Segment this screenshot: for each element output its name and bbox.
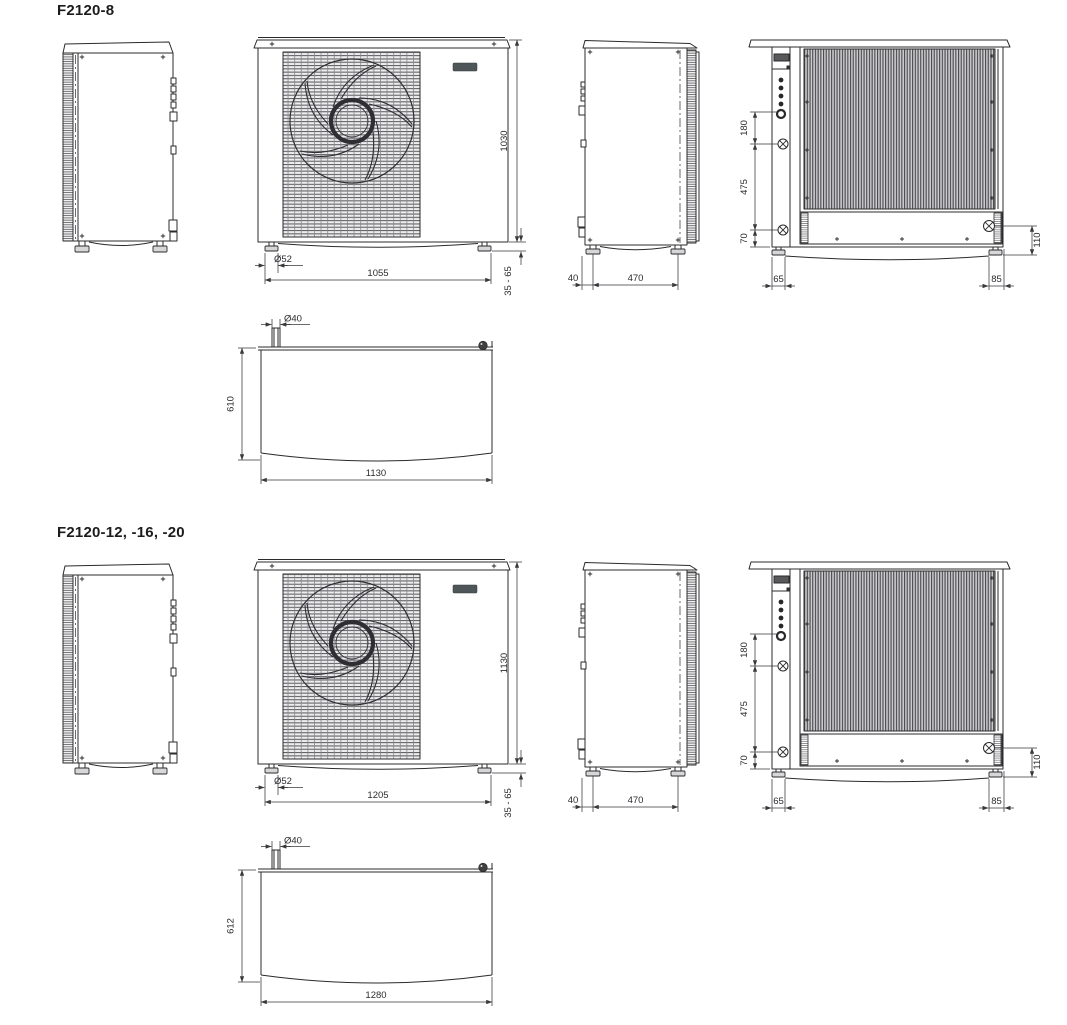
top-cap (63, 564, 173, 575)
top-cap (583, 563, 697, 571)
feet (265, 242, 491, 251)
top-view: Ø40 612 1280 (222, 830, 522, 1025)
top-cap (254, 40, 510, 48)
feet (75, 763, 167, 774)
model-title: F2120-12, -16, -20 (57, 524, 185, 541)
cabinet-body (73, 575, 173, 763)
side-fins (63, 53, 73, 241)
dim-width-label: 1205 (367, 790, 388, 801)
pipe-connection-icon (778, 225, 788, 235)
small-mark (787, 66, 790, 69)
dim-left-offset-label: 65 (773, 796, 784, 807)
cabinet-body (73, 53, 173, 241)
dim-pipe-dia-label: Ø40 (284, 314, 302, 325)
pipe-connection-icon (778, 661, 788, 671)
dim-left-offset-label: 65 (773, 274, 784, 285)
nibe-badge (453, 585, 477, 593)
dim-right-height-label: 110 (1032, 754, 1043, 769)
panel-bracket (801, 213, 808, 243)
nibe-badge (453, 63, 477, 71)
heat-exchanger-coil (804, 571, 995, 731)
side-view-right: 40 470 (560, 32, 720, 307)
front-curve (261, 975, 492, 983)
model-title: F2120-8 (57, 2, 114, 19)
fan-grille (283, 574, 420, 759)
dim-height-label: 1030 (499, 130, 510, 151)
dim-bottom-offset-label: 70 (739, 233, 750, 244)
side-view-right: 40 470 (560, 554, 720, 829)
side-view-left (50, 38, 195, 273)
panel-bracket (994, 735, 1001, 765)
side-fins (687, 572, 696, 765)
feet (772, 247, 1002, 255)
dim-conn-to-bottom-label: 475 (739, 701, 750, 717)
dim-height-label: 1130 (499, 653, 510, 673)
back-view: 180 475 70 65 85 110 (742, 32, 1067, 307)
bottom-curve (785, 778, 989, 782)
dim-foot-dia-label: Ø52 (274, 776, 292, 787)
panel-bracket (801, 735, 808, 765)
pipe-connection-icon (778, 139, 788, 149)
dim-conn-to-bottom-label: 475 (739, 179, 750, 195)
dim-right-offset-label: 85 (991, 274, 1002, 285)
dimensions (573, 776, 679, 812)
top-cap (63, 42, 173, 53)
top-cap (254, 562, 510, 570)
bottom-curve (89, 242, 153, 246)
dim-front-offset-label: 40 (568, 795, 579, 806)
dim-conn-spacing-label: 180 (739, 642, 750, 658)
feet (265, 764, 491, 773)
dim-right-offset-label: 85 (991, 796, 1002, 807)
pipe-connection-icon (984, 221, 995, 232)
fan-grille (283, 52, 420, 237)
service-pipe (272, 328, 280, 347)
dim-conn-spacing-label: 180 (739, 120, 750, 136)
front-curve (261, 453, 492, 461)
panel-bracket (994, 213, 1001, 243)
service-pipe (272, 850, 280, 869)
top-cap (749, 562, 1010, 569)
bottom-curve (278, 766, 478, 770)
dim-foot-range-label: 35 - 65 (503, 266, 514, 296)
dim-foot-range-label: 35 - 65 (503, 788, 514, 818)
front-view: 1130 35 - 65 1205 Ø52 (248, 554, 548, 829)
dim-front-offset-label: 40 (568, 273, 579, 284)
nibe-badge (774, 54, 789, 61)
top-view: Ø40 610 1130 (222, 308, 522, 503)
cable-gland-knob (479, 863, 488, 872)
side-fins (63, 575, 73, 763)
dim-bottom-offset-label: 70 (739, 755, 750, 766)
page: { "palette": { "line": "#2b2b2e", "fill_… (0, 0, 1067, 1008)
nibe-badge (774, 576, 789, 583)
cable-gland-knob (479, 341, 488, 350)
small-mark (787, 588, 790, 591)
dim-right-height-label: 110 (1032, 232, 1043, 247)
cabinet-body (585, 570, 687, 767)
bottom-curve (278, 244, 478, 248)
dim-depth-label: 610 (226, 396, 237, 412)
bottom-curve (785, 256, 989, 260)
feet (772, 769, 1002, 777)
bottom-curve (600, 769, 671, 772)
dim-width-label: 1280 (365, 990, 386, 1001)
heat-exchanger-coil (804, 49, 995, 209)
bottom-curve (89, 764, 153, 768)
dim-foot-spacing-label: 470 (628, 273, 644, 284)
bottom-curve (600, 247, 671, 250)
dim-pipe-dia-label: Ø40 (284, 836, 302, 847)
dim-foot-dia-label: Ø52 (274, 254, 292, 265)
dim-width-label: 1055 (367, 268, 388, 279)
dim-depth-label: 612 (226, 918, 237, 934)
dimensions (573, 254, 679, 290)
section-f2120-12-16-20: F2120-12, -16, -20 (0, 522, 1067, 1008)
back-view: 180 475 70 65 85 110 (742, 554, 1067, 829)
feet (75, 241, 167, 252)
front-view: 1030 35 - 65 1055 Ø52 (248, 32, 548, 307)
section-f2120-8: F2120-8 (0, 0, 1067, 505)
pipe-connection-icon (778, 747, 788, 757)
dim-width-label: 1130 (366, 468, 386, 479)
side-view-left (50, 560, 195, 795)
side-fins (687, 50, 696, 243)
dim-foot-spacing-label: 470 (628, 795, 644, 806)
pipe-connection-icon (984, 743, 995, 754)
top-cap (749, 40, 1010, 47)
cabinet-body (585, 48, 687, 245)
top-cap (583, 41, 697, 49)
